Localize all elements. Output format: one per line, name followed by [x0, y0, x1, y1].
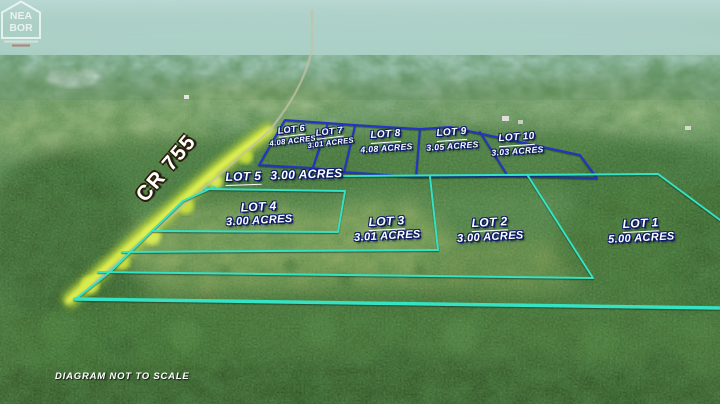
aerial-lot-map: CR 755 LOT 1 5.00 ACRES LOT 2 3.00 ACRES…	[0, 0, 720, 404]
noise-fine	[0, 100, 720, 404]
aerial-photo-background	[0, 0, 720, 404]
